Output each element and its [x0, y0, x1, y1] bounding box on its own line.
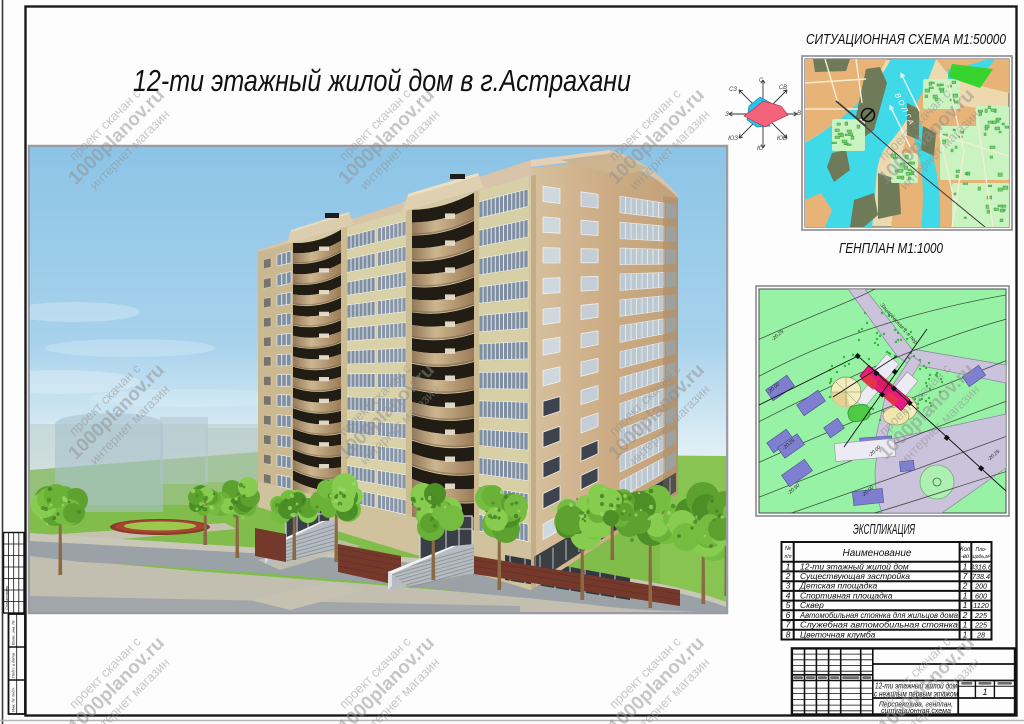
svg-text:Подп. и дата: Подп. и дата	[11, 652, 16, 678]
svg-text:Инв. № подл.: Инв. № подл.	[11, 687, 16, 712]
svg-text:12-ти этажный жилой дом в г.Ас: 12-ти этажный жилой дом в г.Астрахани	[133, 63, 631, 98]
svg-text:3: 3	[786, 581, 791, 591]
svg-text:738.4: 738.4	[972, 572, 990, 581]
svg-text:В: В	[797, 111, 801, 117]
svg-text:Автомобильная стоянка для жиль: Автомобильная стоянка для жильцов дома	[799, 610, 958, 620]
svg-text:8: 8	[786, 629, 791, 639]
svg-text:600: 600	[975, 592, 987, 601]
svg-text:Спортивная площадка: Спортивная площадка	[800, 591, 893, 601]
svg-text:7: 7	[786, 620, 791, 630]
svg-text:1: 1	[963, 561, 968, 571]
svg-text:2: 2	[785, 571, 791, 581]
svg-text:№: №	[785, 545, 792, 552]
svg-text:Ю: Ю	[757, 146, 763, 152]
svg-text:225: 225	[974, 621, 988, 630]
svg-text:ГЕНПЛАН М1:1000: ГЕНПЛАН М1:1000	[839, 240, 944, 257]
svg-text:1: 1	[963, 591, 968, 601]
svg-text:1: 1	[786, 561, 791, 571]
svg-text:6: 6	[786, 610, 791, 620]
svg-text:3316.6: 3316.6	[970, 562, 992, 571]
svg-text:Взам. инв. №: Взам. инв. №	[11, 620, 16, 645]
svg-text:12-ти этажный жилой дом: 12-ти этажный жилой дом	[800, 561, 909, 571]
svg-text:Служебная автомобильная стоянк: Служебная автомобильная стоянка	[800, 620, 958, 630]
svg-text:ЭКСПЛИКАЦИЯ: ЭКСПЛИКАЦИЯ	[853, 521, 915, 538]
svg-text:Наименование: Наименование	[842, 548, 911, 559]
svg-text:С: С	[759, 78, 764, 84]
svg-text:-во: -во	[961, 554, 970, 560]
svg-text:СИТУАЦИОННАЯ СХЕМА М1:50000: СИТУАЦИОННАЯ СХЕМА М1:50000	[806, 31, 1007, 48]
svg-text:ЮВ: ЮВ	[777, 136, 787, 142]
svg-text:З: З	[725, 112, 729, 118]
svg-text:Сквер: Сквер	[800, 600, 824, 610]
svg-text:1: 1	[963, 600, 968, 610]
svg-text:Согласовано: Согласовано	[4, 585, 9, 610]
svg-text:7: 7	[963, 571, 968, 581]
svg-text:225: 225	[974, 611, 988, 620]
svg-text:1: 1	[963, 620, 968, 630]
svg-text:Цветочная клумба: Цветочная клумба	[800, 629, 876, 639]
svg-text:Детская площадка: Детская площадка	[799, 581, 877, 591]
svg-text:28: 28	[976, 630, 985, 639]
svg-text:200: 200	[974, 582, 987, 591]
svg-text:5: 5	[786, 600, 791, 610]
svg-text:2: 2	[962, 581, 968, 591]
svg-text:4: 4	[786, 591, 791, 601]
svg-text:СЗ: СЗ	[729, 87, 737, 93]
svg-text:п/п: п/п	[785, 554, 792, 560]
svg-text:Пло-: Пло-	[976, 547, 987, 553]
svg-text:2: 2	[962, 610, 968, 620]
svg-text:ЮЗ: ЮЗ	[728, 136, 738, 142]
svg-text:1120: 1120	[973, 601, 988, 610]
svg-text:СВ: СВ	[779, 85, 787, 91]
svg-text:Кол: Кол	[960, 547, 971, 553]
svg-text:1: 1	[982, 687, 987, 697]
svg-text:щадь,м²: щадь,м²	[972, 554, 991, 560]
svg-text:Существующая застройка: Существующая застройка	[800, 571, 910, 581]
